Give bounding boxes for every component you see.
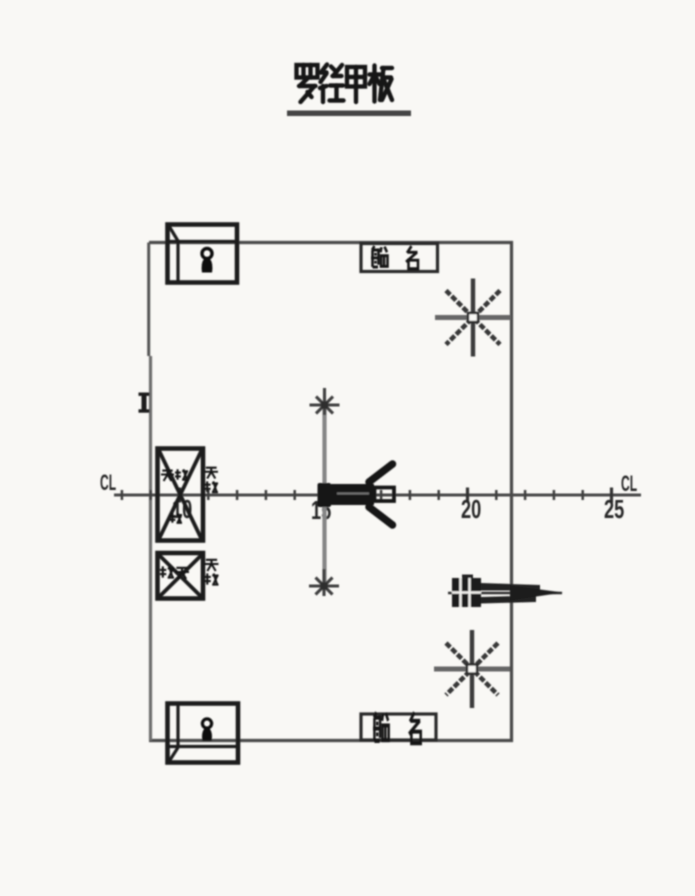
svg-text:CL: CL [100,470,116,495]
svg-text:20: 20 [461,495,481,524]
svg-text:25: 25 [604,495,624,524]
svg-text:CL: CL [621,471,637,496]
